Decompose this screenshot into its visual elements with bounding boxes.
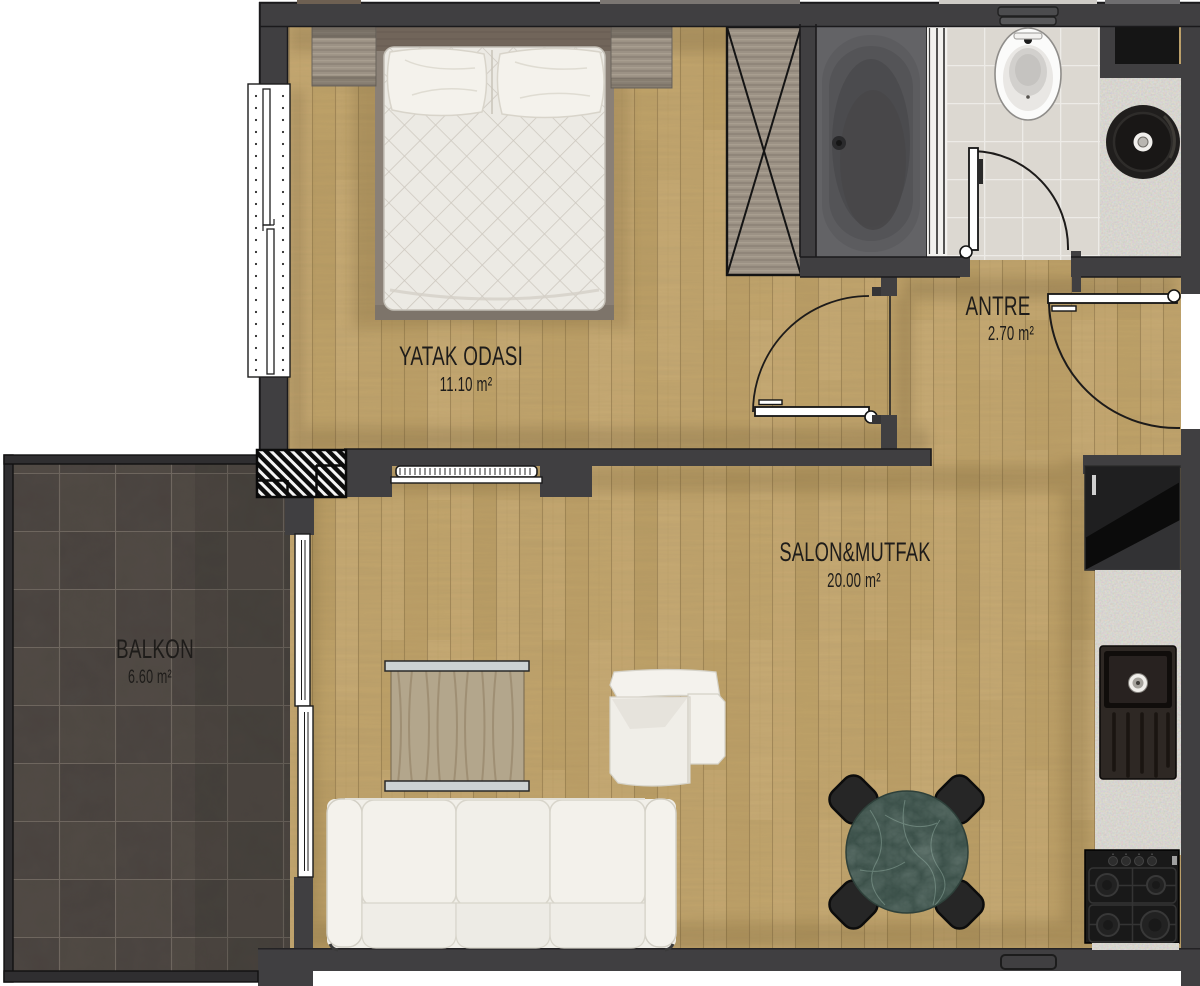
svg-text:SALON&MUTFAK: SALON&MUTFAK xyxy=(779,536,931,566)
svg-text:YATAK ODASI: YATAK ODASI xyxy=(399,341,523,371)
svg-text:BALKON: BALKON xyxy=(116,634,194,664)
svg-text:6.60 m²: 6.60 m² xyxy=(128,666,172,687)
svg-text:ANTRE: ANTRE xyxy=(965,291,1030,321)
svg-text:11.10 m²: 11.10 m² xyxy=(440,373,493,395)
svg-text:20.00 m²: 20.00 m² xyxy=(827,569,881,591)
svg-text:2.70 m²: 2.70 m² xyxy=(988,322,1034,344)
